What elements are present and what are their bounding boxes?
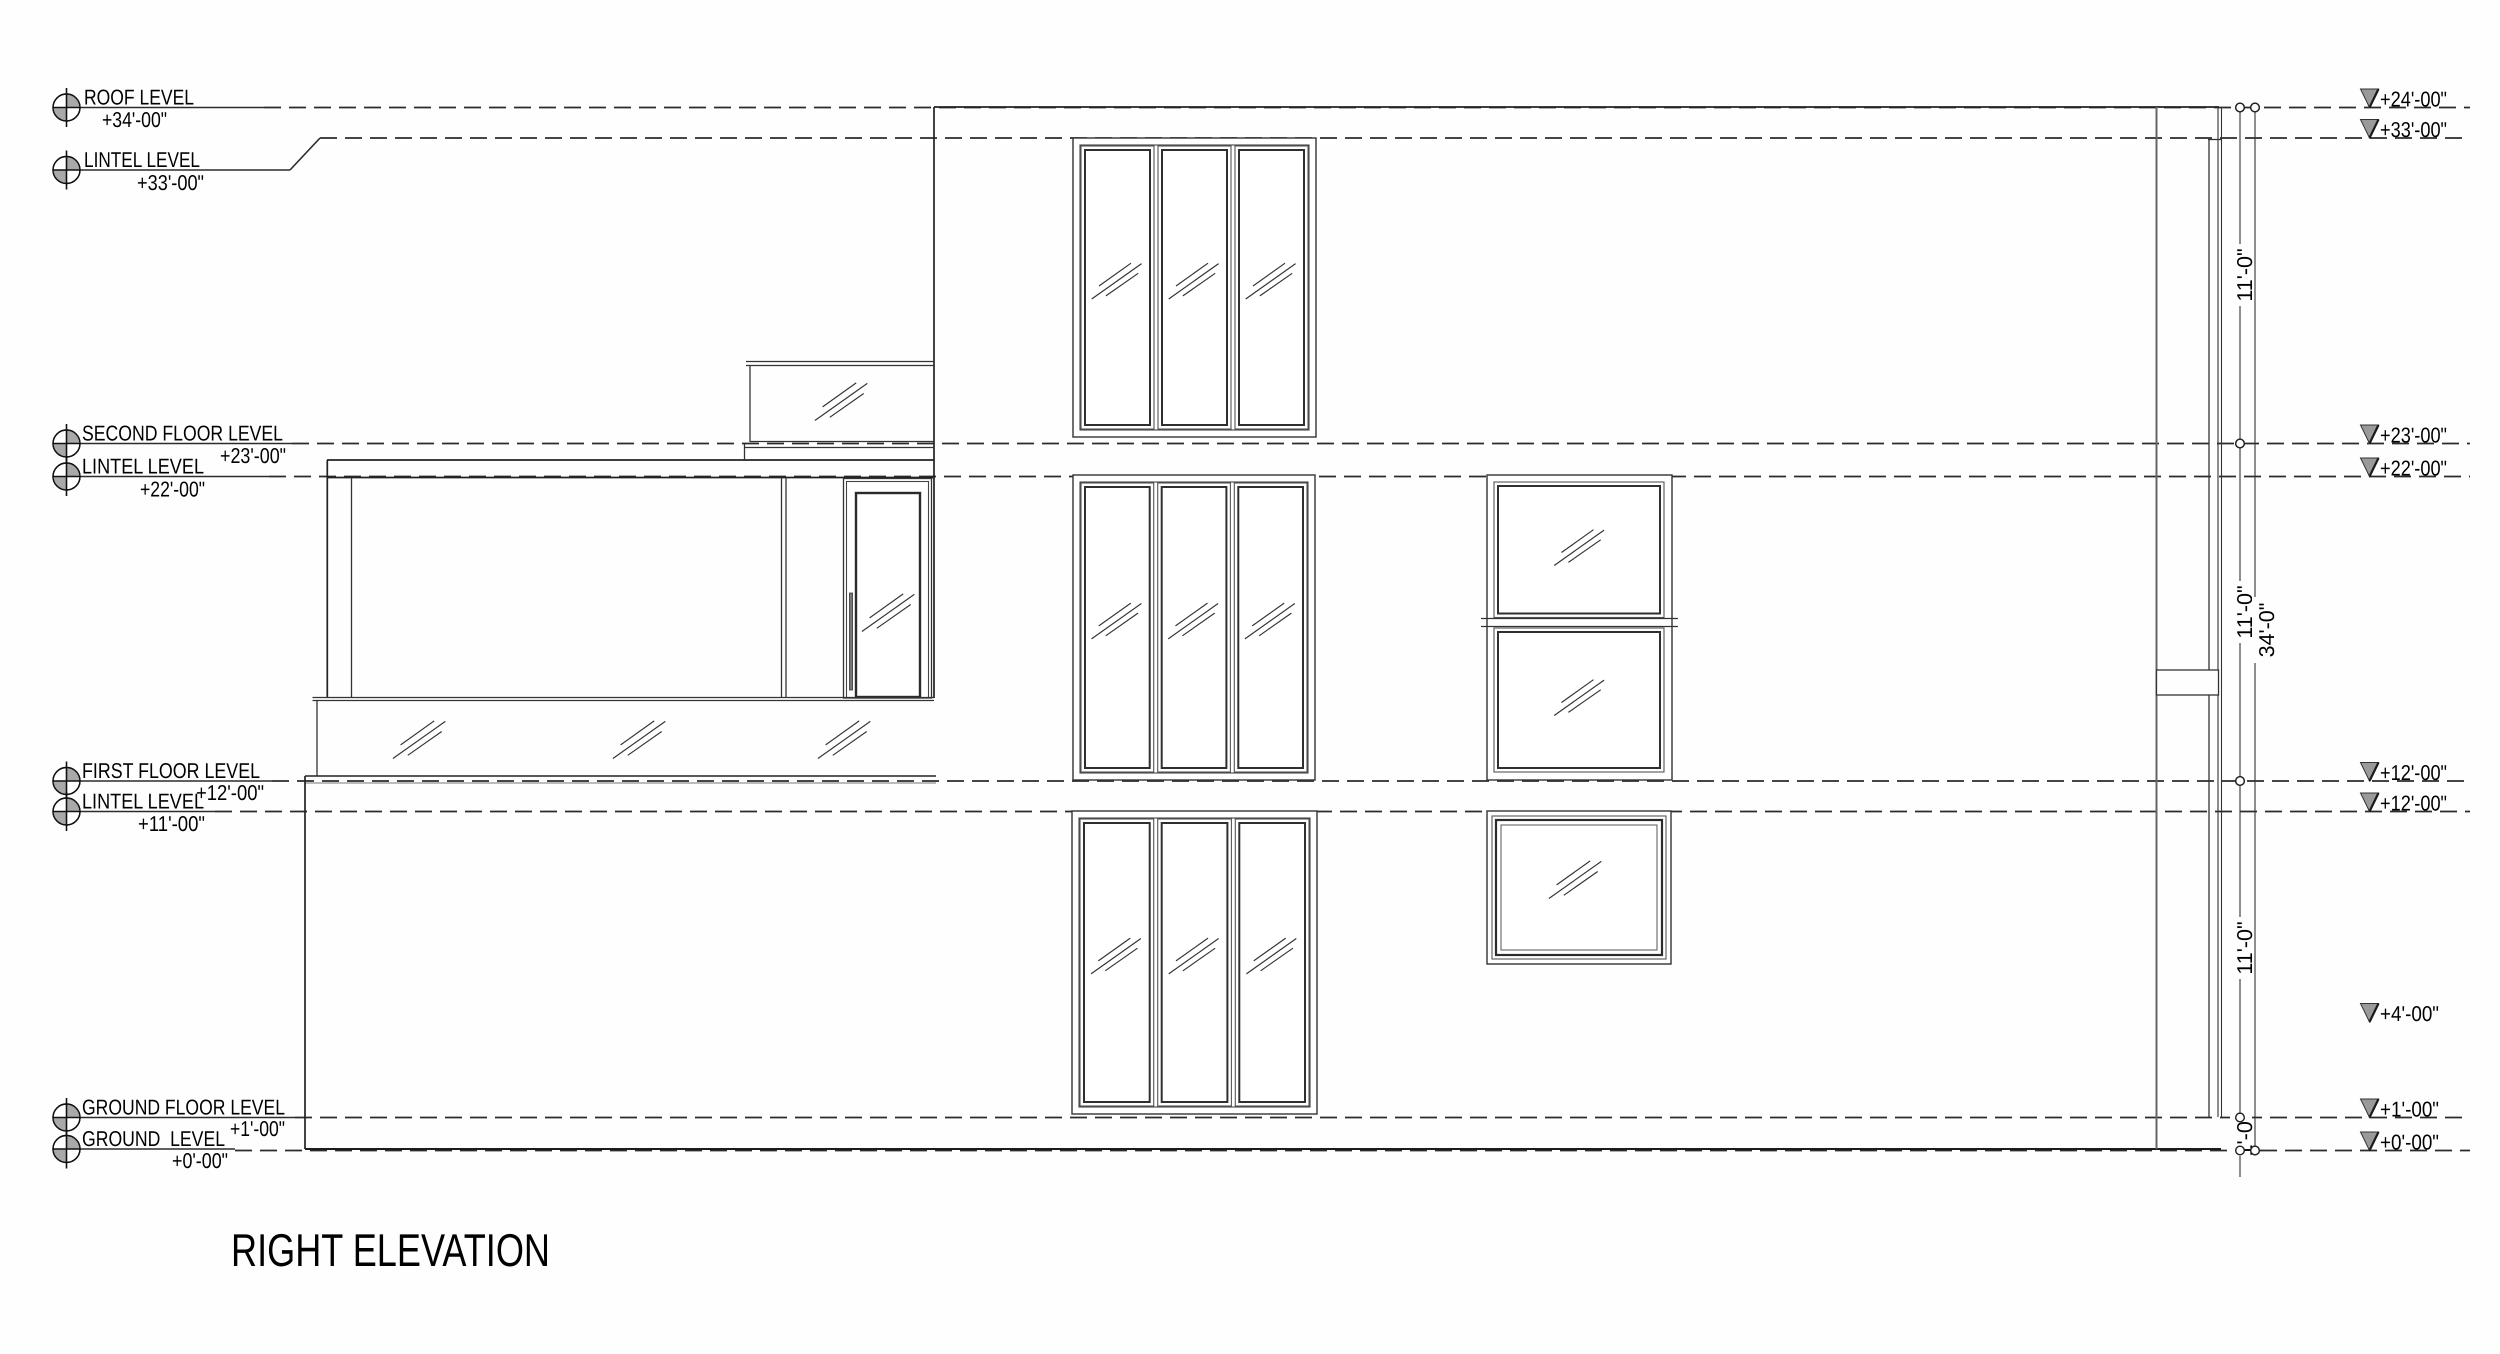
svg-text:+12'-00": +12'-00" xyxy=(2380,761,2447,785)
svg-text:GROUND LEVEL: GROUND LEVEL xyxy=(82,1127,225,1151)
svg-text:+33'-00": +33'-00" xyxy=(137,171,204,195)
svg-text:GROUND FLOOR LEVEL: GROUND FLOOR LEVEL xyxy=(82,1096,285,1120)
svg-text:+33'-00": +33'-00" xyxy=(2380,118,2447,142)
svg-text:+4'-00": +4'-00" xyxy=(2380,1002,2439,1026)
svg-text:11'-0": 11'-0" xyxy=(2233,921,2257,974)
svg-text:+1'-00": +1'-00" xyxy=(2380,1098,2439,1122)
svg-text:LINTEL LEVEL: LINTEL LEVEL xyxy=(84,148,200,172)
svg-text:+24'-00": +24'-00" xyxy=(2380,88,2447,112)
svg-text:RIGHT ELEVATION: RIGHT ELEVATION xyxy=(231,1224,550,1276)
svg-text:+22'-00": +22'-00" xyxy=(2380,457,2447,481)
svg-text:ROOF LEVEL: ROOF LEVEL xyxy=(84,86,194,110)
svg-text:34'-0": 34'-0" xyxy=(2255,603,2279,658)
svg-text:+11'-00": +11'-00" xyxy=(138,812,205,836)
svg-text:11'-0": 11'-0" xyxy=(2233,248,2257,301)
svg-text:+1'-00": +1'-00" xyxy=(230,1117,285,1141)
svg-text:+0'-00": +0'-00" xyxy=(172,1149,228,1173)
svg-text:+34'-00": +34'-00" xyxy=(102,108,167,132)
svg-text:+22'-00": +22'-00" xyxy=(140,478,205,502)
svg-text:+23'-00": +23'-00" xyxy=(220,444,286,468)
svg-text:+12'-00": +12'-00" xyxy=(2380,792,2447,816)
svg-text:FIRST FLOOR LEVEL: FIRST FLOOR LEVEL xyxy=(82,759,260,783)
svg-text:+23'-00": +23'-00" xyxy=(2380,424,2447,448)
svg-text:LINTEL LEVEL: LINTEL LEVEL xyxy=(82,790,204,814)
svg-text:SECOND FLOOR LEVEL: SECOND FLOOR LEVEL xyxy=(82,422,283,446)
svg-text:+0'-00": +0'-00" xyxy=(2380,1131,2439,1155)
svg-text:+12'-00": +12'-00" xyxy=(196,781,264,805)
svg-text:LINTEL LEVEL: LINTEL LEVEL xyxy=(82,455,204,479)
